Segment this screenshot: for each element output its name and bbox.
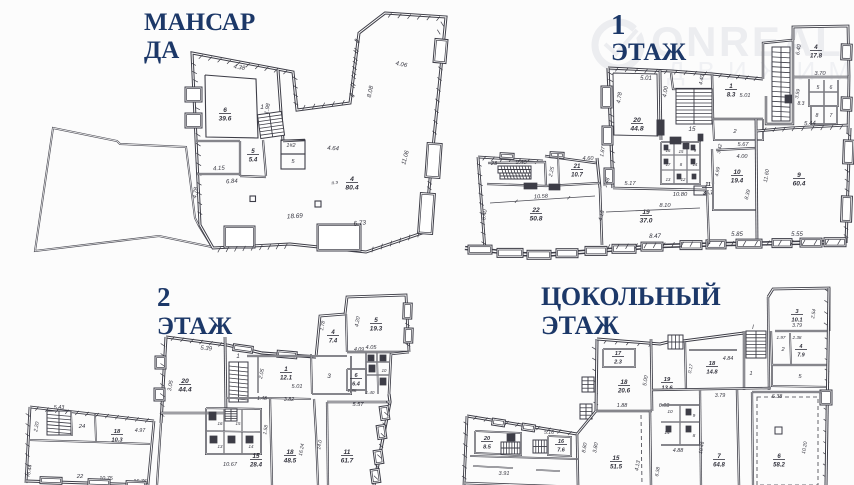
svg-text:5.16: 5.16 — [544, 430, 554, 436]
svg-text:64.8: 64.8 — [713, 462, 725, 468]
svg-text:1: 1 — [729, 83, 733, 90]
svg-text:14: 14 — [664, 430, 670, 436]
svg-text:12.1: 12.1 — [280, 374, 293, 381]
svg-text:10.3: 10.3 — [111, 437, 123, 443]
svg-text:80.4: 80.4 — [345, 184, 358, 191]
svg-text:21: 21 — [573, 164, 581, 170]
svg-text:6.84: 6.84 — [226, 179, 239, 186]
svg-text:1.48: 1.48 — [257, 396, 267, 402]
svg-text:5.85: 5.85 — [731, 232, 743, 238]
svg-text:3.79: 3.79 — [792, 323, 802, 329]
svg-text:5.55: 5.55 — [791, 232, 803, 238]
svg-text:10: 10 — [667, 409, 673, 415]
svg-text:20: 20 — [180, 378, 189, 385]
svg-text:4.09: 4.09 — [354, 347, 364, 353]
svg-text:5.01: 5.01 — [292, 384, 303, 390]
svg-text:4.97: 4.97 — [135, 428, 146, 434]
svg-text:44.4: 44.4 — [177, 386, 191, 393]
svg-text:1.88: 1.88 — [617, 403, 628, 409]
svg-text:7.9: 7.9 — [797, 352, 804, 358]
svg-text:1: 1 — [284, 366, 288, 373]
svg-text:5.44: 5.44 — [804, 121, 817, 127]
svg-text:4.05: 4.05 — [366, 345, 378, 351]
svg-text:1: 1 — [611, 9, 626, 41]
svg-text:58.2: 58.2 — [773, 462, 785, 468]
svg-text:18: 18 — [114, 429, 121, 435]
svg-text:16: 16 — [218, 421, 223, 426]
svg-text:8: 8 — [693, 433, 696, 439]
svg-text:23: 23 — [490, 161, 498, 167]
svg-text:16: 16 — [666, 148, 671, 153]
svg-text:2.3: 2.3 — [613, 359, 623, 365]
svg-text:3.82: 3.82 — [284, 397, 295, 403]
svg-text:15: 15 — [236, 421, 241, 426]
svg-text:4.88: 4.88 — [673, 448, 684, 454]
svg-text:10.80: 10.80 — [673, 192, 688, 198]
svg-text:28.4: 28.4 — [249, 461, 263, 468]
svg-text:17: 17 — [666, 162, 671, 167]
svg-text:ДВИЖИМ: ДВИЖИМ — [667, 56, 854, 86]
svg-text:6: 6 — [830, 85, 833, 91]
svg-text:8.3: 8.3 — [798, 101, 805, 107]
svg-text:10.7: 10.7 — [571, 172, 583, 178]
svg-text:51.5: 51.5 — [610, 463, 623, 470]
svg-text:1#2: 1#2 — [286, 143, 295, 149]
svg-text:4: 4 — [349, 176, 354, 183]
svg-text:4: 4 — [799, 344, 803, 350]
svg-text:5: 5 — [251, 148, 255, 155]
svg-text:5.67: 5.67 — [738, 142, 750, 148]
svg-text:9: 9 — [693, 413, 696, 419]
svg-text:20: 20 — [632, 117, 641, 124]
svg-text:4.64: 4.64 — [327, 146, 340, 153]
svg-text:44.8: 44.8 — [629, 125, 643, 132]
svg-text:48.5: 48.5 — [283, 457, 297, 464]
svg-text:19.4: 19.4 — [731, 177, 744, 184]
svg-text:2.38: 2.38 — [792, 335, 802, 340]
svg-text:8.10: 8.10 — [659, 203, 671, 209]
svg-text:5: 5 — [374, 317, 378, 324]
svg-text:14.8: 14.8 — [706, 369, 718, 375]
svg-text:5.57: 5.57 — [352, 402, 364, 408]
svg-text:5.01: 5.01 — [640, 76, 652, 82]
svg-text:4.00: 4.00 — [737, 154, 749, 160]
svg-text:16: 16 — [558, 439, 565, 445]
svg-text:6.73: 6.73 — [353, 219, 367, 227]
svg-text:9: 9 — [797, 172, 801, 179]
svg-text:1.40: 1.40 — [366, 390, 375, 395]
svg-text:5.4: 5.4 — [249, 156, 258, 163]
svg-text:1: 1 — [260, 104, 264, 111]
svg-text:18.69: 18.69 — [287, 212, 304, 220]
svg-text:24: 24 — [78, 424, 85, 430]
svg-text:ЭТАЖ: ЭТАЖ — [611, 39, 686, 66]
svg-text:8.3: 8.3 — [727, 91, 736, 98]
svg-text:3: 3 — [327, 373, 331, 380]
svg-text:1.86: 1.86 — [348, 388, 357, 393]
svg-text:12: 12 — [681, 177, 686, 182]
svg-text:10: 10 — [382, 368, 387, 373]
svg-text:14: 14 — [249, 444, 254, 449]
svg-text:22: 22 — [76, 474, 84, 480]
svg-text:4: 4 — [330, 330, 335, 336]
svg-text:19.3: 19.3 — [370, 325, 383, 332]
svg-text:61.7: 61.7 — [341, 457, 354, 464]
svg-text:3.91: 3.91 — [499, 471, 510, 477]
svg-text:15: 15 — [679, 149, 684, 154]
svg-text:5: 5 — [817, 85, 820, 91]
svg-text:18: 18 — [621, 379, 628, 386]
svg-text:15: 15 — [253, 453, 260, 460]
svg-text:6.03: 6.03 — [659, 403, 670, 409]
svg-text:39.6: 39.6 — [219, 115, 232, 122]
svg-text:4.15: 4.15 — [213, 166, 226, 173]
svg-text:15: 15 — [689, 126, 696, 133]
svg-text:11: 11 — [344, 449, 351, 456]
svg-text:4.84: 4.84 — [723, 356, 734, 362]
svg-text:6: 6 — [223, 107, 227, 114]
svg-text:3.79: 3.79 — [715, 393, 726, 399]
svg-text:20: 20 — [483, 436, 491, 442]
svg-text:37.0: 37.0 — [640, 217, 653, 224]
svg-text:13: 13 — [666, 177, 671, 182]
svg-text:1: 1 — [749, 371, 752, 377]
svg-text:17: 17 — [615, 351, 622, 357]
svg-text:50.8: 50.8 — [530, 215, 543, 222]
svg-text:1.97: 1.97 — [777, 335, 786, 340]
svg-text:10: 10 — [733, 169, 741, 176]
svg-text:5.40: 5.40 — [515, 160, 527, 166]
svg-text:22: 22 — [531, 207, 540, 214]
svg-text:18: 18 — [286, 449, 294, 456]
svg-text:7.4: 7.4 — [329, 338, 338, 344]
svg-text:8.47: 8.47 — [649, 234, 661, 240]
svg-text:3.70: 3.70 — [814, 71, 826, 77]
svg-text:5.17: 5.17 — [624, 181, 636, 187]
svg-text:7.6: 7.6 — [557, 447, 565, 453]
svg-text:2: 2 — [157, 282, 171, 312]
svg-text:4: 4 — [813, 44, 818, 51]
svg-text:5.01: 5.01 — [740, 93, 751, 99]
svg-text:13: 13 — [218, 444, 223, 449]
svg-text:17.8: 17.8 — [810, 52, 823, 59]
svg-text:6.4: 6.4 — [352, 381, 361, 387]
svg-text:15: 15 — [613, 455, 620, 462]
svg-text:8: 8 — [816, 113, 819, 119]
svg-text:60.4: 60.4 — [793, 180, 806, 187]
svg-text:20.6: 20.6 — [617, 387, 631, 394]
svg-text:14: 14 — [693, 162, 698, 167]
svg-text:1: 1 — [236, 354, 239, 360]
svg-text:18: 18 — [709, 361, 716, 367]
svg-text:5.43: 5.43 — [54, 405, 65, 411]
svg-text:5.39: 5.39 — [200, 345, 213, 352]
svg-text:8.5: 8.5 — [483, 444, 492, 450]
svg-text:4.60: 4.60 — [583, 156, 595, 162]
svg-text:19: 19 — [664, 377, 671, 383]
svg-text:10.67: 10.67 — [223, 462, 238, 468]
